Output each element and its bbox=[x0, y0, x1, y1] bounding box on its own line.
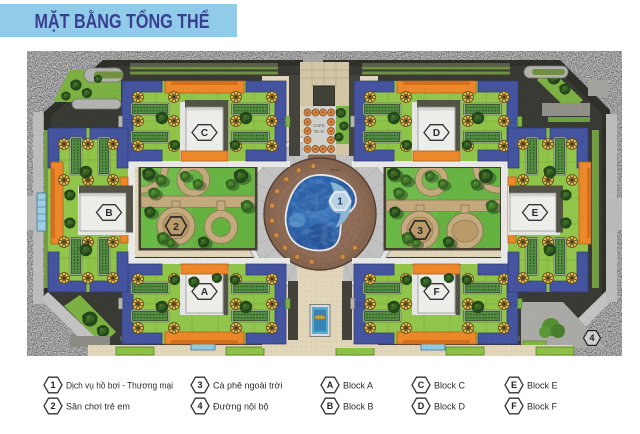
svg-text:Block A: Block A bbox=[343, 381, 373, 391]
svg-text:Cà phê ngoài trời: Cà phê ngoài trời bbox=[213, 381, 282, 391]
svg-text:Dịch vụ hồ bơi - Thương mại: Dịch vụ hồ bơi - Thương mại bbox=[66, 381, 173, 391]
svg-text:3: 3 bbox=[197, 380, 202, 390]
svg-text:Block C: Block C bbox=[434, 381, 466, 391]
svg-text:A: A bbox=[327, 380, 334, 390]
svg-text:Đường nội bộ: Đường nội bộ bbox=[213, 402, 268, 412]
svg-text:C: C bbox=[418, 380, 425, 390]
svg-text:Block F: Block F bbox=[527, 402, 558, 412]
svg-text:MẶT BẰNG TỔNG THỂ: MẶT BẰNG TỔNG THỂ bbox=[35, 9, 210, 33]
svg-text:1: 1 bbox=[50, 380, 55, 390]
svg-text:Block B: Block B bbox=[343, 402, 374, 412]
svg-text:D: D bbox=[418, 401, 425, 411]
svg-text:Block E: Block E bbox=[527, 381, 558, 391]
svg-text:Block D: Block D bbox=[434, 402, 466, 412]
svg-text:B: B bbox=[327, 401, 334, 411]
svg-text:E: E bbox=[511, 380, 517, 390]
svg-text:4: 4 bbox=[589, 333, 594, 343]
svg-text:4: 4 bbox=[197, 401, 202, 411]
svg-text:2: 2 bbox=[50, 401, 55, 411]
svg-text:F: F bbox=[511, 401, 517, 411]
svg-text:Sân chơi trẻ em: Sân chơi trẻ em bbox=[66, 402, 130, 412]
